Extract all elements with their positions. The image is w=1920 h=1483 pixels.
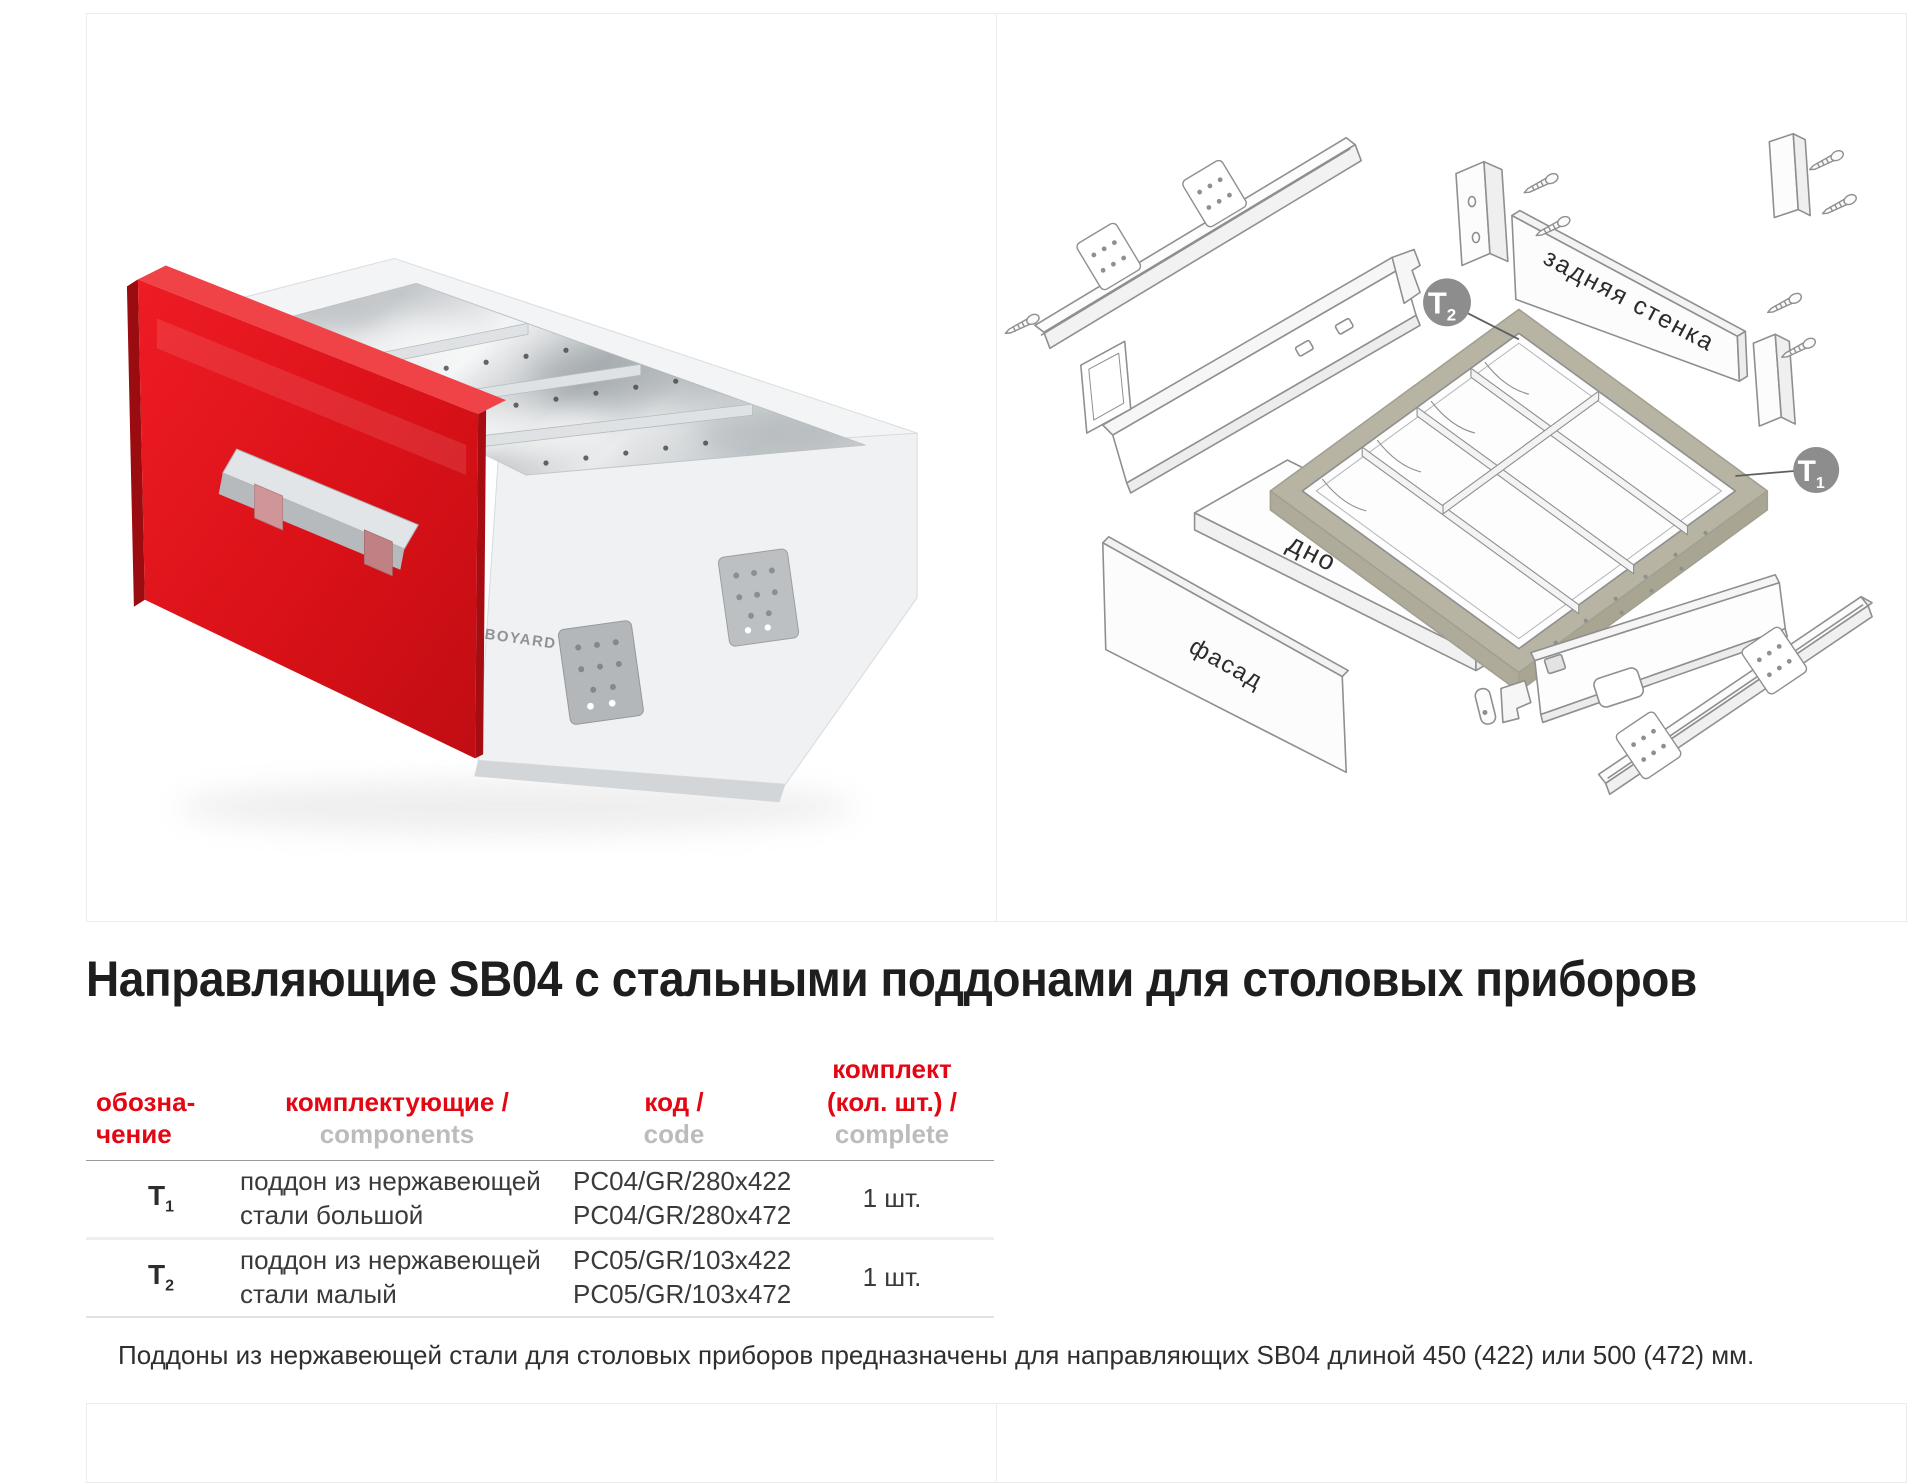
col-header-components: комплектующие / components [236, 1086, 558, 1151]
table-header: обозна- чение комплектующие / components… [86, 1053, 994, 1161]
note-text: Поддоны из нержавеющей стали для столовы… [118, 1340, 1754, 1371]
designation-t2: T2 [86, 1259, 236, 1296]
components-table: обозна- чение комплектующие / components… [86, 1053, 994, 1318]
hook-bracket-back-left [1456, 162, 1508, 266]
screw [1821, 193, 1858, 218]
designation-t1: T1 [86, 1180, 236, 1217]
screw [1808, 149, 1845, 174]
screw [1766, 291, 1803, 316]
table-body: T1 поддон из нержавеющей стали большой P… [86, 1161, 994, 1318]
hook-bracket-top-right [1769, 134, 1810, 218]
table-row-t1: T1 поддон из нержавеющей стали большой P… [86, 1161, 994, 1237]
page-title: Направляющие SB04 с стальными поддонами … [86, 950, 1697, 1008]
col-header-designation: обозна- чение [86, 1086, 236, 1151]
col-header-complete: комплект (кол. шт.) / complete [790, 1053, 994, 1151]
screw [1522, 172, 1559, 197]
mounting-bracket-left [558, 620, 644, 725]
col-header-code: код / code [558, 1086, 790, 1151]
exploded-diagram: задняя стенка дно фасад T2 T1 [997, 14, 1906, 921]
component-codes: PC04/GR/280x422 PC04/GR/280x472 [558, 1165, 790, 1233]
assembly-diagram-panel: задняя стенка дно фасад T2 T1 [996, 13, 1907, 922]
product-photo-panel: BOYARD [86, 13, 997, 922]
table-row-t2: T2 поддон из нержавеющей стали малый PC0… [86, 1237, 994, 1316]
component-codes: PC05/GR/103x422 PC05/GR/103x472 [558, 1244, 790, 1312]
component-name: поддон из нержавеющей стали большой [236, 1165, 558, 1233]
mounting-bracket-right [718, 548, 800, 647]
drawer-photo-illustration: BOYARD [87, 14, 996, 921]
component-qty: 1 шт. [790, 1262, 994, 1293]
component-qty: 1 шт. [790, 1183, 994, 1214]
next-section-panel-right [996, 1403, 1907, 1483]
hook-bracket-back-right [1753, 334, 1795, 426]
next-section-panel-left [86, 1403, 997, 1483]
component-name: поддон из нержавеющей стали малый [236, 1244, 558, 1312]
